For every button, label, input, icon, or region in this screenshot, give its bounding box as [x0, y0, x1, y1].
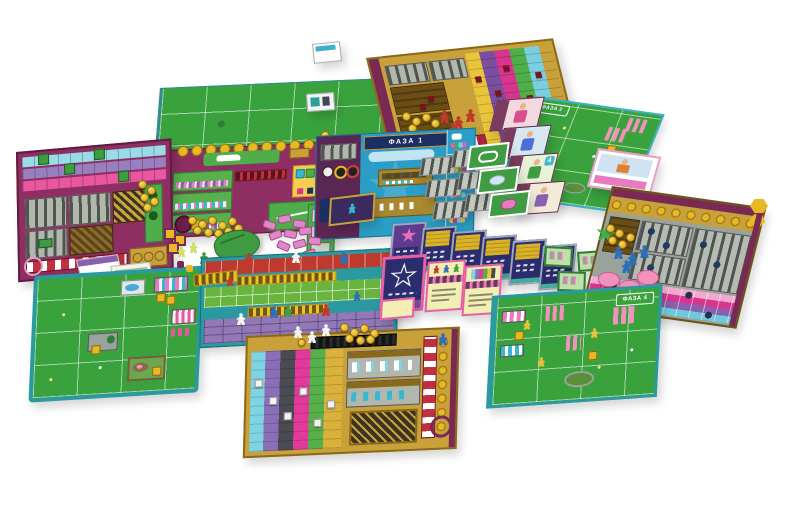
- pink-token: [292, 239, 307, 250]
- text-line: [516, 263, 536, 266]
- coin-token: [340, 323, 349, 332]
- tile-window: [322, 96, 330, 105]
- coin-token: [615, 229, 624, 238]
- coin-token: [422, 113, 431, 122]
- coin-token: [356, 336, 365, 345]
- action-card: [424, 259, 465, 312]
- meeple-yellow: [536, 357, 547, 368]
- coin-token: [360, 324, 369, 333]
- fence-group: [566, 335, 582, 351]
- green-chip: [38, 238, 52, 248]
- portrait-head: [533, 159, 541, 166]
- icon-color-bars: [471, 268, 496, 280]
- green-card: [467, 142, 510, 171]
- rule-strip: [235, 169, 287, 182]
- animal-banner: [203, 149, 280, 166]
- cube-white: [284, 412, 292, 420]
- meeple-lime: [188, 242, 199, 253]
- field-board-phase4: ФАЗА 4: [486, 284, 662, 409]
- step-chip: [452, 133, 462, 140]
- card-band: [428, 275, 462, 284]
- text-line: [431, 299, 449, 302]
- tile-window: [310, 97, 320, 107]
- gray-panel: [347, 348, 422, 379]
- portrait-body: [527, 166, 542, 179]
- meeple-yellow: [589, 328, 600, 339]
- resource-square-cyan: [295, 169, 304, 178]
- portrait-head: [526, 131, 534, 138]
- card-badge: 4: [544, 156, 555, 166]
- player-board-bottom: [243, 327, 460, 459]
- tree: [218, 120, 226, 127]
- text-line: [486, 259, 506, 262]
- fence-group: [545, 304, 566, 320]
- pig-meeple: [637, 270, 659, 285]
- cube-darkred: [495, 90, 502, 97]
- house-tile: [94, 148, 105, 160]
- coin-token: [402, 112, 411, 121]
- portrait-body: [616, 164, 630, 173]
- cube-darkred: [475, 76, 482, 83]
- slot-circle: [154, 250, 164, 261]
- field-board-southwest: [28, 266, 203, 403]
- flower-dot: [563, 126, 567, 129]
- tile-stripe: [315, 45, 335, 52]
- flower-dot: [597, 366, 600, 369]
- mini-row: [383, 180, 413, 185]
- field-panel: [69, 224, 113, 256]
- crate-token: [156, 293, 165, 303]
- text-line: [426, 250, 446, 253]
- coin-token: [208, 216, 217, 225]
- bush: [107, 335, 115, 344]
- fence-group: [604, 127, 629, 143]
- resource-square-navy: [307, 188, 313, 194]
- phase4-label: ФАЗА 4: [616, 292, 655, 307]
- coin-token: [138, 180, 147, 189]
- barn-panel: [69, 192, 111, 226]
- card-art: [515, 243, 541, 260]
- card-art: [485, 239, 511, 256]
- cloud-icon: [489, 174, 506, 186]
- coin-token: [606, 224, 615, 233]
- icon-meeple-green: [452, 264, 461, 273]
- coin-token: [143, 203, 152, 212]
- cube-darkred: [428, 96, 434, 102]
- shop-pixels: [176, 180, 228, 189]
- fence-row: [171, 327, 191, 336]
- coin-token: [204, 228, 213, 237]
- gray-panel: [346, 378, 421, 407]
- barn-panel: [25, 228, 67, 260]
- shop-strip: [172, 191, 233, 213]
- coin-icon: [298, 338, 306, 346]
- building-tile: [501, 309, 526, 323]
- text-line: [516, 268, 536, 271]
- portrait-body: [513, 110, 528, 123]
- tile-pixels: [563, 276, 579, 285]
- coin-token: [140, 193, 149, 202]
- crate-token: [515, 331, 524, 341]
- text-line: [396, 250, 414, 253]
- icon-meeple-red: [432, 265, 441, 274]
- flower-dot: [98, 366, 101, 369]
- coin-token: [431, 119, 440, 128]
- dark-field-panel: [349, 409, 418, 446]
- gray-tile: [321, 143, 357, 161]
- green-card: [488, 190, 531, 219]
- pig-dot: [136, 364, 142, 368]
- step-dots: [451, 142, 467, 148]
- flower-dot: [62, 314, 65, 317]
- die-gold: [186, 265, 193, 272]
- house-tile: [64, 163, 75, 175]
- pond: [564, 370, 595, 388]
- cube-darkred: [420, 104, 426, 110]
- wood-panel: [390, 82, 451, 115]
- text-line: [426, 255, 446, 258]
- text-line: [469, 293, 493, 297]
- coin-token: [188, 216, 197, 225]
- pond-water: [125, 283, 139, 291]
- pink-token: [283, 229, 297, 240]
- text-line: [388, 292, 416, 296]
- resource-square-magenta: [297, 188, 303, 194]
- gold-panel: [374, 195, 436, 218]
- resource-square-green: [305, 168, 314, 177]
- card-footer: [511, 277, 541, 283]
- phase1-label: ФАЗА 1: [364, 132, 448, 150]
- cube-white: [313, 419, 321, 427]
- token-square: [167, 242, 179, 254]
- cube-white: [269, 397, 277, 405]
- building-tile: [500, 343, 525, 357]
- text-line: [468, 298, 492, 302]
- card-back-purple: [329, 192, 376, 226]
- shop-strip: [173, 170, 234, 192]
- bag-fold: [220, 234, 245, 245]
- cube-white: [299, 387, 307, 395]
- panel-slots: [351, 390, 411, 402]
- coin-token: [147, 186, 156, 195]
- text-line: [468, 304, 486, 307]
- cube-darkred: [535, 72, 542, 79]
- small-tile: [312, 41, 342, 64]
- text-line: [456, 254, 476, 257]
- slot-panel: [428, 58, 469, 81]
- board-game-table-photo: ФАЗА 3: [0, 0, 800, 505]
- shop-pixels: [175, 201, 227, 210]
- card-art: [425, 230, 451, 247]
- coin-token: [345, 334, 354, 343]
- panel-slots: [352, 360, 412, 373]
- coin-token: [608, 236, 617, 245]
- pen-tile: [127, 355, 166, 381]
- flower-dot: [630, 349, 633, 352]
- building-tile: [171, 308, 196, 325]
- portrait-body: [520, 138, 535, 151]
- blob-icon: [500, 198, 516, 210]
- fence-group: [612, 306, 635, 325]
- pond: [562, 181, 588, 195]
- panel-header: [347, 379, 419, 388]
- building-tile: [153, 275, 188, 292]
- portrait-head: [519, 103, 527, 110]
- gold-chip: [289, 148, 309, 159]
- animal-silhouette: [217, 154, 241, 161]
- green-tile: [544, 246, 573, 267]
- shed-tile: [88, 332, 119, 352]
- crate-token: [166, 295, 175, 305]
- slot-panel: [384, 62, 431, 86]
- barn-panel: [25, 196, 67, 230]
- pink-token: [276, 240, 291, 253]
- slot-circle: [133, 252, 143, 263]
- portrait-body: [534, 194, 549, 207]
- house-tile: [118, 170, 129, 182]
- cube-white: [327, 400, 335, 408]
- green-card: [477, 166, 520, 195]
- card-art: [455, 234, 481, 251]
- crate-token: [588, 351, 597, 361]
- text-line: [432, 293, 456, 297]
- card-art: [597, 154, 654, 179]
- coin-token: [193, 226, 202, 235]
- cube-white: [255, 379, 263, 387]
- tile-pixels: [549, 251, 565, 260]
- cube-darkred: [503, 65, 510, 72]
- slot-circle: [143, 251, 153, 262]
- pink-token: [299, 226, 313, 235]
- coin-token: [366, 335, 375, 344]
- panel-header: [348, 349, 420, 358]
- crate-token: [92, 345, 101, 355]
- portrait-head: [540, 187, 548, 194]
- coin-token: [626, 233, 635, 242]
- start-ring: [24, 256, 43, 277]
- card-art-star: [400, 227, 418, 243]
- tree: [149, 211, 158, 221]
- house-tile: [38, 153, 49, 165]
- pond-tile: [121, 279, 146, 296]
- pips: [380, 202, 420, 211]
- icon-circle-red: [346, 165, 359, 179]
- flower-dot: [49, 378, 52, 381]
- pig-meeple: [598, 272, 620, 287]
- crate-token: [152, 366, 161, 376]
- icon-meeple-blue: [442, 264, 451, 273]
- action-card-edge: [380, 297, 415, 320]
- text-line: [432, 288, 456, 292]
- pink-token: [308, 236, 322, 245]
- small-tile: [306, 92, 335, 112]
- meeple-cyan-icon: [347, 203, 357, 214]
- icon-circle-white: [322, 166, 333, 178]
- squiggle-icon: [477, 150, 498, 163]
- die-purple: [177, 261, 184, 268]
- card-band: [465, 280, 499, 289]
